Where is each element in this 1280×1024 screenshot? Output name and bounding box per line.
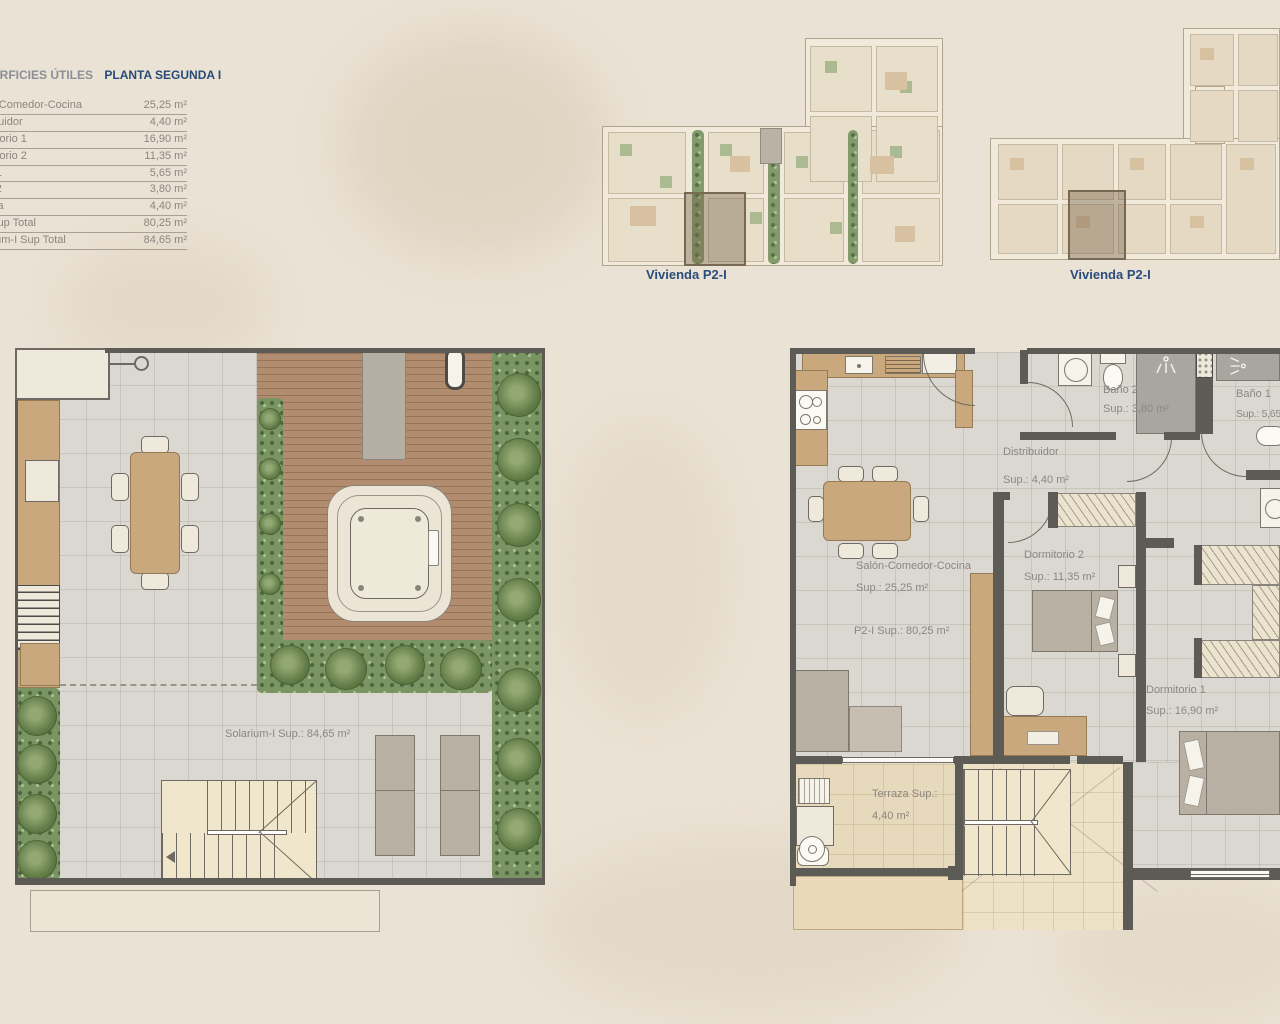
lower-roof-extension: [30, 890, 380, 932]
table-row: Dormitorio 116,90 m²: [0, 132, 187, 149]
sliding-door-window: [842, 757, 954, 763]
room-patch: [895, 226, 915, 242]
lounger-fold-line: [441, 790, 479, 791]
wall: [1164, 432, 1200, 440]
row-label: Salón-Comedor-Cocina: [0, 98, 82, 114]
wardrobe: [1200, 640, 1280, 678]
kitchen-vent: [885, 356, 921, 374]
dorm1-sup: Sup.: 16,90 m²: [1146, 705, 1218, 717]
surface-table-title-prefix: SUPERFICIES ÚTILES: [0, 68, 93, 82]
wall: [15, 878, 545, 885]
tree: [270, 645, 310, 685]
laundry-sink: [798, 778, 830, 804]
jacuzzi-jet: [358, 585, 364, 591]
dorm2-sup: Sup.: 11,35 m²: [1024, 571, 1095, 583]
stair-handrail: [964, 820, 1038, 825]
stair-handrail: [207, 830, 287, 835]
row-label: Dormitorio 2: [0, 149, 27, 165]
tree: [259, 513, 281, 535]
row-label: Baño 1: [0, 166, 2, 182]
table-row: Baño 23,80 m²: [0, 182, 187, 199]
bed-dorm1: [1179, 731, 1280, 815]
stair-bulkhead: [15, 348, 110, 400]
wall: [1194, 545, 1202, 585]
wall: [1048, 492, 1058, 528]
terraza-label: Terraza Sup.:: [872, 788, 937, 800]
wall: [1196, 378, 1213, 434]
chair: [808, 496, 824, 522]
washbasin: [1260, 488, 1280, 528]
chair: [913, 496, 929, 522]
tree: [17, 794, 57, 834]
apartment-plan: Baño 2 Sup.: 3,80 m² Baño 1 Sup.: 5,65 m…: [790, 348, 1280, 935]
glass-block-wall: [1196, 350, 1213, 378]
basin-bowl: [1064, 358, 1088, 382]
tree: [259, 458, 281, 480]
overview-plan-a: [600, 36, 945, 266]
wall: [790, 348, 796, 886]
row-value: 16,90 m²: [144, 132, 187, 148]
wall: [993, 492, 1004, 762]
tree: [497, 373, 541, 417]
dining-table: [823, 481, 911, 541]
bano1-sup: Sup.: 5,65 m²: [1236, 408, 1280, 420]
surface-table-title-floor: PLANTA SEGUNDA I: [104, 68, 221, 82]
wardrobe: [1200, 545, 1280, 585]
row-label: P2-I Sup Total: [0, 216, 36, 232]
tree: [325, 648, 367, 690]
chair: [111, 473, 129, 501]
wall: [15, 400, 18, 880]
stair-core: [760, 128, 782, 164]
light-fixture-icon: [134, 356, 149, 371]
burner: [800, 414, 811, 425]
unit-cell: [1190, 90, 1234, 142]
wardrobe: [1056, 493, 1136, 527]
unit-cell: [998, 204, 1058, 254]
room-patch: [1190, 216, 1204, 228]
room-patch: [1200, 48, 1214, 60]
tree: [385, 645, 425, 685]
chair: [181, 525, 199, 553]
shower-icon: [1227, 354, 1247, 378]
sun-lounger: [440, 735, 480, 856]
row-value: 5,65 m²: [150, 166, 187, 182]
unit-cell: [1238, 34, 1278, 86]
wall: [105, 348, 545, 353]
stair-treads: [964, 770, 1036, 820]
wall: [1146, 538, 1174, 548]
unit-cell: [998, 144, 1058, 200]
unit-cell: [1170, 144, 1222, 200]
tree: [497, 503, 541, 547]
kitchen-sink: [845, 356, 873, 374]
ladder: [15, 585, 60, 650]
room-patch: [1130, 158, 1144, 170]
boiler-icon: [799, 836, 825, 862]
wall: [1246, 470, 1280, 480]
tree: [497, 668, 541, 712]
wall: [1020, 350, 1028, 384]
chair: [141, 572, 169, 590]
cooktop-icon: [794, 390, 827, 430]
planter: [660, 176, 672, 188]
boiler-dial: [808, 845, 817, 854]
bano2-label: Baño 2: [1103, 384, 1138, 396]
bed-fold-line: [1091, 591, 1092, 651]
planter: [720, 144, 732, 156]
lounger-fold-line: [376, 790, 414, 791]
surface-table-rows: Salón-Comedor-Cocina25,25 m² Distribuido…: [0, 98, 187, 250]
nightstand: [1118, 654, 1136, 677]
chair: [838, 466, 864, 482]
unit-cell: [1238, 90, 1278, 142]
sideboard: [970, 573, 994, 756]
unit-cell: [608, 132, 686, 194]
solarium-plan: Solarium-I Sup.: 84,65 m²: [15, 348, 545, 936]
bed-dorm2: [1032, 590, 1118, 652]
table-row: Distribuidor4,40 m²: [0, 115, 187, 132]
roof-shaft: [362, 350, 406, 460]
overview-plan-b: [990, 28, 1280, 265]
room-patch: [630, 206, 656, 226]
burner: [799, 395, 813, 409]
wall: [542, 348, 545, 880]
tree: [259, 573, 281, 595]
background-wash: [560, 420, 730, 720]
row-value: 3,80 m²: [150, 182, 187, 198]
sofa: [790, 670, 849, 752]
planter: [796, 156, 808, 168]
terraza-sup: 4,40 m²: [872, 810, 909, 822]
desk-item: [1027, 731, 1059, 745]
window: [1190, 870, 1270, 878]
wall: [955, 764, 963, 880]
dorm2-label: Dormitorio 2: [1024, 549, 1084, 561]
planter: [620, 144, 632, 156]
tree: [259, 408, 281, 430]
tree: [17, 696, 57, 736]
wall: [1136, 492, 1146, 762]
desk: [996, 716, 1087, 756]
chair: [181, 473, 199, 501]
washbasin: [1058, 352, 1092, 386]
tree: [497, 578, 541, 622]
salon-sup: Sup.: 25,25 m²: [856, 582, 928, 594]
highlighted-unit: [1068, 190, 1126, 260]
background-wash: [340, 30, 610, 260]
lower-terrace-strip: [793, 876, 963, 930]
stair-direction-line: [1030, 769, 1071, 822]
room-patch: [1010, 158, 1024, 170]
dining-table: [130, 452, 180, 574]
tree: [497, 438, 541, 482]
skylight: [445, 348, 465, 390]
sofa-chaise: [849, 706, 902, 752]
sun-lounger: [375, 735, 415, 856]
tree: [440, 648, 482, 690]
row-value: 11,35 m²: [144, 149, 187, 165]
row-label: Dormitorio 1: [0, 132, 27, 148]
bathtub: [1256, 426, 1280, 446]
planter-strip: [848, 130, 858, 264]
table-row: Solarium-I Sup Total84,65 m²: [0, 233, 187, 250]
stair-arrow-icon: [166, 851, 175, 863]
window-mullion: [1191, 874, 1269, 875]
row-label: Distribuidor: [0, 115, 23, 131]
desk-chair: [1006, 686, 1044, 716]
dorm1-label: Dormitorio 1: [1146, 684, 1206, 696]
p2i-total-sup: P2-I Sup.: 80,25 m²: [854, 625, 949, 637]
nightstand: [1118, 565, 1136, 588]
tree: [497, 808, 541, 852]
chair: [838, 543, 864, 559]
planter: [750, 212, 762, 224]
planter: [830, 222, 842, 234]
table-row: Baño 15,65 m²: [0, 166, 187, 183]
wall: [793, 868, 963, 876]
room-patch: [730, 156, 750, 172]
tree: [497, 738, 541, 782]
wall: [1020, 432, 1116, 440]
pillow: [1095, 621, 1116, 646]
tree: [17, 744, 57, 784]
table-row: Terraza4,40 m²: [0, 199, 187, 216]
unit-cell: [810, 46, 872, 112]
bed-fold-line: [1206, 732, 1207, 814]
row-value: 25,25 m²: [144, 98, 187, 114]
jacuzzi-control-panel: [428, 530, 439, 566]
basin-bowl: [1265, 499, 1280, 519]
row-value: 80,25 m²: [144, 216, 187, 232]
shower-icon: [1153, 355, 1179, 377]
stair-treads: [964, 826, 1036, 876]
burner: [813, 416, 821, 424]
light-fixture-arm: [110, 363, 136, 365]
unit-cell: [810, 116, 872, 182]
room-patch: [885, 72, 907, 90]
sink-drain: [857, 364, 861, 368]
jacuzzi-jet: [415, 516, 421, 522]
chair: [872, 543, 898, 559]
wall: [1077, 756, 1123, 764]
surface-table-title: SUPERFICIES ÚTILES PLANTA SEGUNDA I: [0, 68, 187, 82]
row-value: 4,40 m²: [150, 199, 187, 215]
surface-table: SUPERFICIES ÚTILES PLANTA SEGUNDA I Saló…: [0, 68, 187, 250]
wall: [790, 348, 975, 354]
planter: [825, 61, 837, 73]
stair-direction-line: [1031, 822, 1072, 875]
chair: [111, 525, 129, 553]
unit-cell: [1170, 204, 1222, 254]
table-row: P2-I Sup Total80,25 m²: [0, 216, 187, 233]
jacuzzi: [327, 485, 452, 622]
row-label: Solarium-I Sup Total: [0, 233, 66, 249]
burner: [812, 397, 822, 407]
staircase: [963, 769, 1071, 875]
row-value: 4,40 m²: [150, 115, 187, 131]
room-patch: [1240, 158, 1254, 170]
bano1-label: Baño 1: [1236, 388, 1271, 400]
bano2-sup: Sup.: 3,80 m²: [1103, 403, 1169, 415]
pillow: [1183, 739, 1205, 772]
jacuzzi-jet: [415, 585, 421, 591]
wall: [954, 756, 1070, 764]
shower-bano1: [1216, 350, 1280, 381]
wall: [1123, 762, 1133, 930]
staircase: [161, 780, 317, 884]
salon-label: Salón-Comedor-Cocina: [856, 560, 971, 572]
jacuzzi-jet: [358, 516, 364, 522]
plan-sheet-page: { "page": { "background_color": "#eae2d4…: [0, 0, 1280, 1024]
wall: [1194, 638, 1202, 678]
pillow: [1095, 595, 1116, 620]
wardrobe: [1252, 585, 1280, 640]
table-row: Dormitorio 211,35 m²: [0, 149, 187, 166]
table-row: Salón-Comedor-Cocina25,25 m²: [0, 98, 187, 115]
distribuidor-label: Distribuidor: [1003, 446, 1059, 458]
plan-b-caption: Vivienda P2-I: [1070, 267, 1151, 282]
highlighted-unit: [684, 192, 746, 266]
pillow: [1183, 775, 1205, 808]
wall: [790, 756, 842, 764]
wall: [1027, 348, 1280, 354]
paving-joint: [60, 684, 257, 686]
shower-bano2: [1136, 350, 1196, 434]
row-label: Terraza: [0, 199, 4, 215]
storage-box: [25, 460, 59, 502]
solarium-area-label: Solarium-I Sup.: 84,65 m²: [225, 728, 350, 740]
stair-treads: [207, 781, 318, 833]
unit-cell: [1190, 34, 1234, 86]
room-patch: [870, 156, 894, 174]
distribuidor-sup: Sup.: 4,40 m²: [1003, 474, 1069, 486]
row-label: Baño 2: [0, 182, 2, 198]
planter-deck-strip: [20, 643, 60, 686]
chair: [872, 466, 898, 482]
plan-a-caption: Vivienda P2-I: [646, 267, 727, 282]
row-value: 84,65 m²: [144, 233, 187, 249]
tree: [17, 840, 57, 880]
